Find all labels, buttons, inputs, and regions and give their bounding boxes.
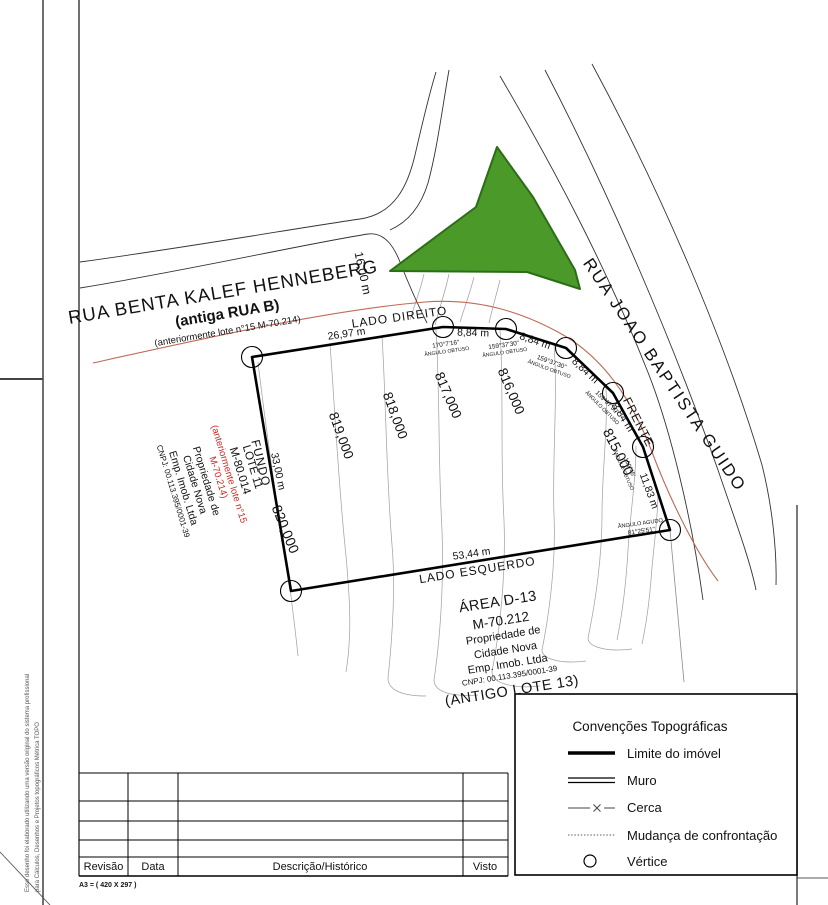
dimension-seg1: 8,84 m — [457, 326, 490, 339]
table-header-revisao: Revisão — [84, 861, 124, 873]
rua-joao-mid-edge — [545, 70, 756, 590]
survey-sheet: RUA BENTA KALEF HENNEBERG (antiga RUA B)… — [0, 0, 828, 905]
contour-label-819: 819,000 — [326, 410, 357, 461]
legend-item-muro: Muro — [627, 773, 657, 788]
margin-disclaimer: Esse desenho foi elaborado utilizando um… — [23, 532, 43, 892]
rua-benta-north-curb — [80, 72, 436, 262]
legend-title: Convenções Topográficas — [572, 719, 727, 734]
disclaimer-line-1: Esse desenho foi elaborado utilizando um… — [23, 532, 33, 892]
contour-label-816: 816,000 — [495, 366, 528, 417]
survey-drawing: RUA BENTA KALEF HENNEBERG (antiga RUA B)… — [0, 0, 828, 905]
table-header-data: Data — [141, 861, 165, 873]
legend-item-vertice: Vértice — [627, 854, 667, 869]
legend-box: Convenções Topográficas Limite do imóvel… — [515, 694, 797, 875]
street-name-rua-joao: RUA JOAO BAPTISTA GUIDO — [579, 255, 750, 495]
contour-label-818: 818,000 — [380, 390, 411, 441]
boundary-extension-line — [670, 530, 684, 682]
contour-label-817: 817,000 — [432, 370, 465, 421]
side-label-lado-direito: LADO DIREITO — [351, 303, 448, 330]
disclaimer-line-2: para Cálculos, Desenhos e Projetos topog… — [33, 532, 43, 892]
north-street-inner-curve — [390, 70, 449, 230]
table-header-descricao: Descrição/Histórico — [273, 861, 368, 873]
angle-annotation-6: ÂNGULO AGUDO 81°25'51" — [617, 517, 665, 538]
angle-annotation-1: 170°7'16" ÂNGULO OBTUSO — [423, 337, 470, 358]
legend-item-limite: Limite do imóvel — [627, 746, 721, 761]
sheet-size-note: A3 = ( 420 X 297 ) — [79, 882, 136, 889]
table-header-visto: Visto — [473, 861, 497, 873]
legend-item-mudanca: Mudança de confrontação — [627, 828, 777, 843]
legend-item-cerca: Cerca — [627, 800, 662, 815]
angle-annotation-3: 159°37'30" ÂNGULO OBTUSO — [527, 351, 575, 381]
